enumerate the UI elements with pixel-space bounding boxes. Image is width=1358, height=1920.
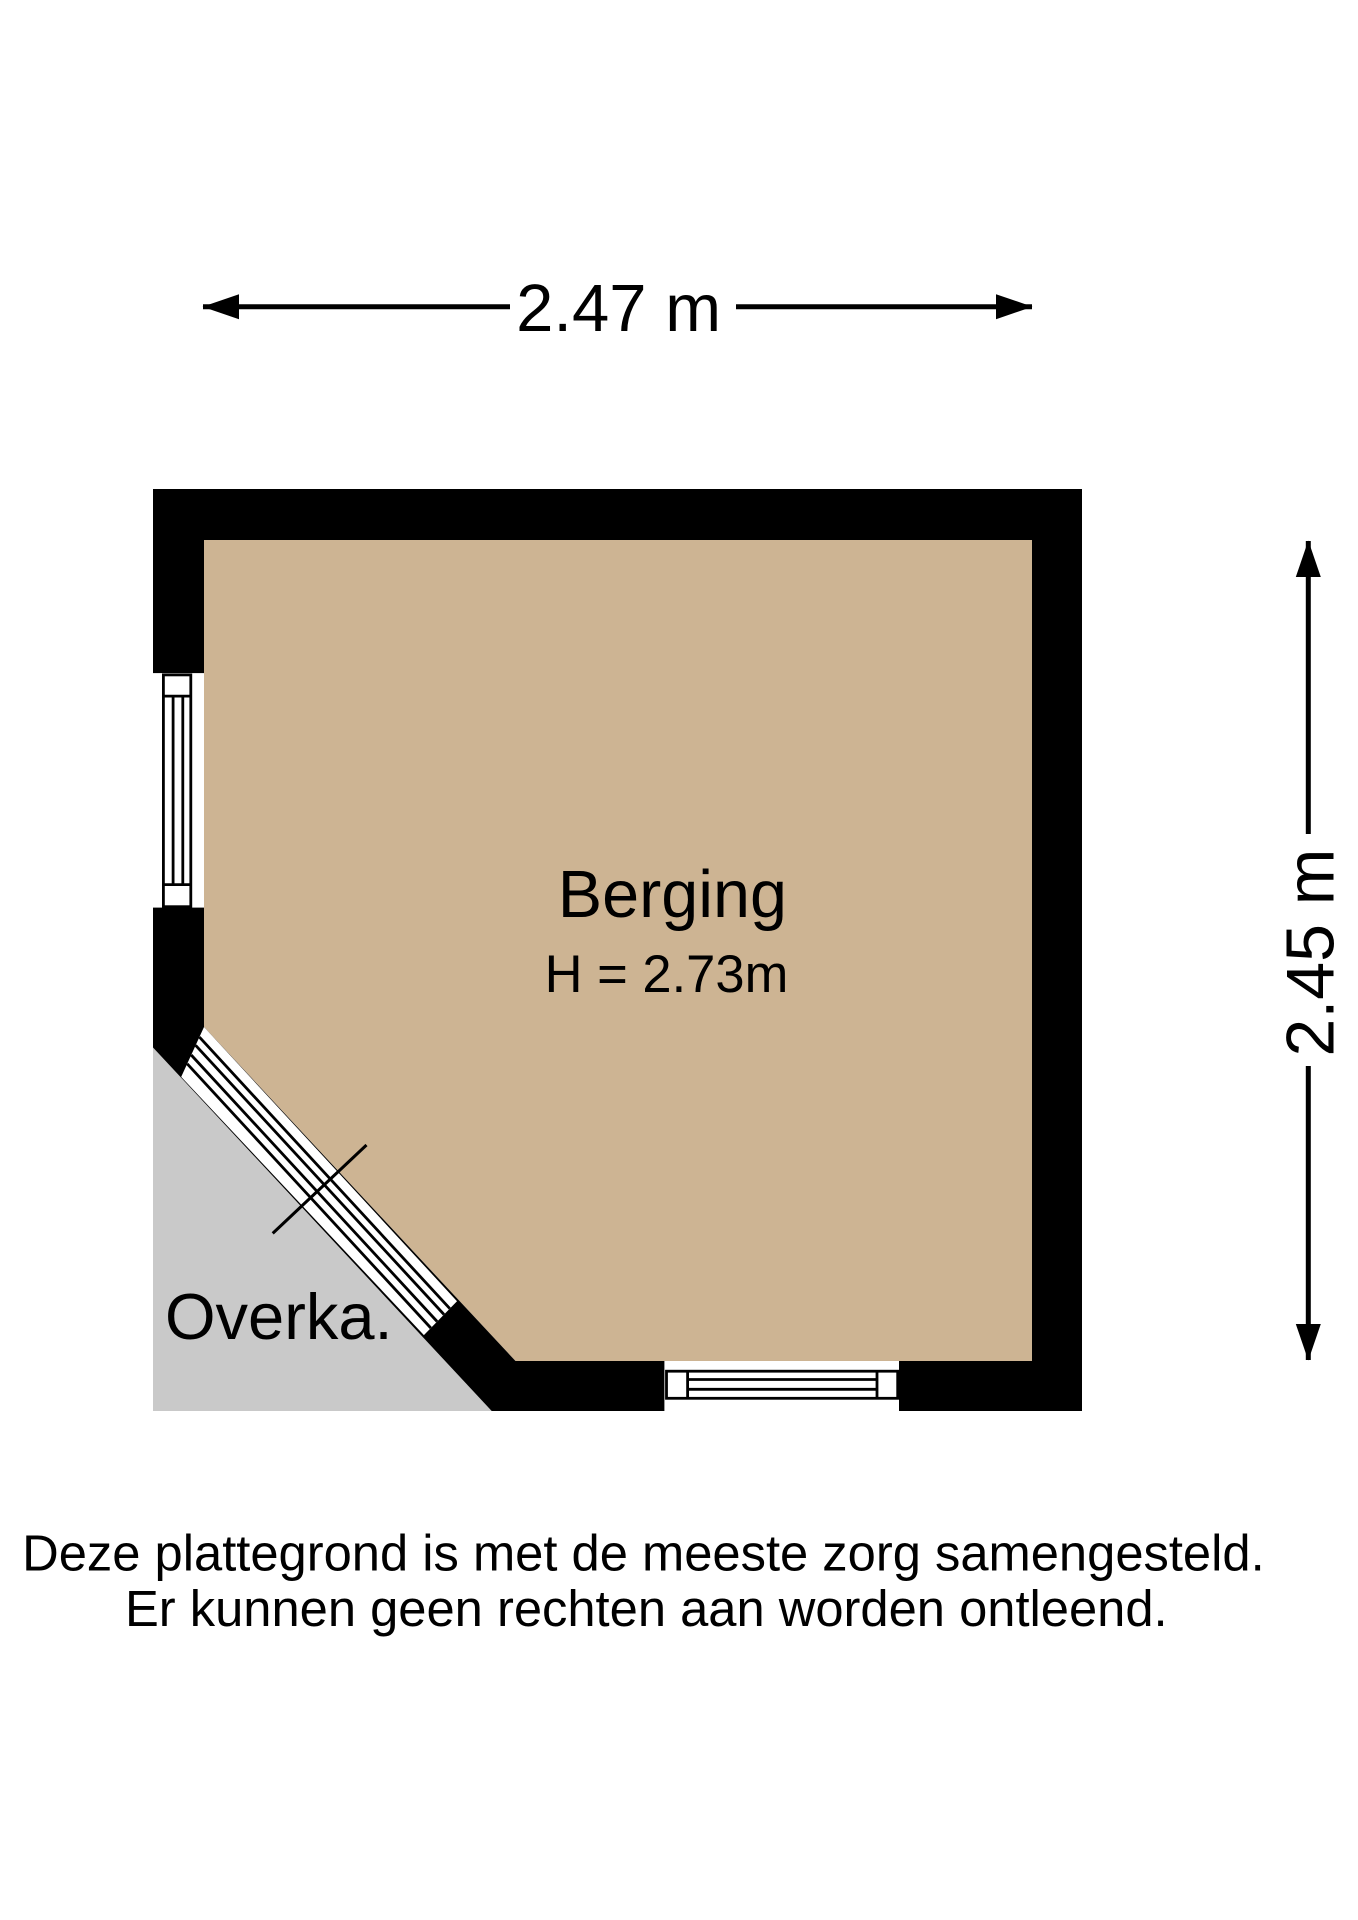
svg-text:Overka.: Overka. [165, 1280, 393, 1353]
svg-text:H = 2.73m: H = 2.73m [545, 945, 789, 1004]
svg-text:Er kunnen geen rechten aan wor: Er kunnen geen rechten aan worden ontlee… [125, 1580, 1168, 1637]
svg-text:2.45 m: 2.45 m [1273, 849, 1349, 1057]
svg-text:Deze plattegrond is met de mee: Deze plattegrond is met de meeste zorg s… [22, 1525, 1265, 1582]
svg-text:Berging: Berging [558, 858, 787, 932]
svg-text:2.47 m: 2.47 m [516, 271, 721, 346]
